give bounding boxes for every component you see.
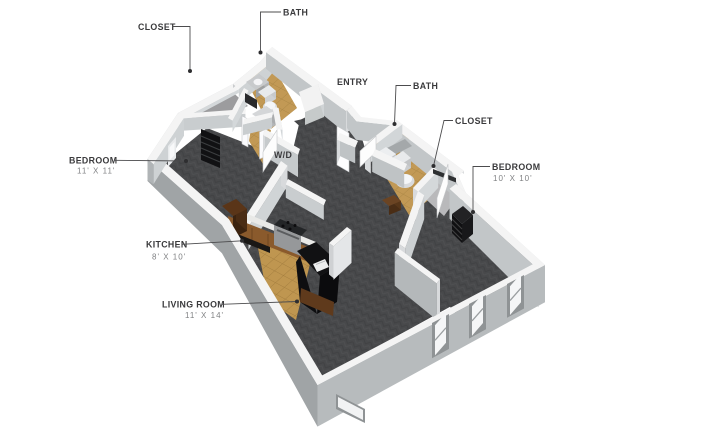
svg-text:BATH: BATH [283, 8, 308, 18]
svg-text:LIVING ROOM: LIVING ROOM [162, 300, 225, 310]
svg-text:11' X 11': 11' X 11' [77, 167, 115, 176]
svg-text:CLOSET: CLOSET [138, 22, 176, 32]
svg-text:8' X 10': 8' X 10' [152, 253, 186, 262]
svg-text:10' X 10': 10' X 10' [493, 174, 533, 183]
svg-text:CLOSET: CLOSET [455, 116, 493, 126]
svg-text:BATH: BATH [413, 81, 438, 91]
svg-text:11' X 14': 11' X 14' [185, 311, 224, 320]
svg-text:BEDROOM: BEDROOM [69, 156, 117, 166]
svg-text:ENTRY: ENTRY [337, 77, 368, 87]
svg-text:KITCHEN: KITCHEN [146, 240, 188, 250]
svg-text:BEDROOM: BEDROOM [492, 162, 540, 172]
svg-text:W/D: W/D [274, 150, 292, 160]
